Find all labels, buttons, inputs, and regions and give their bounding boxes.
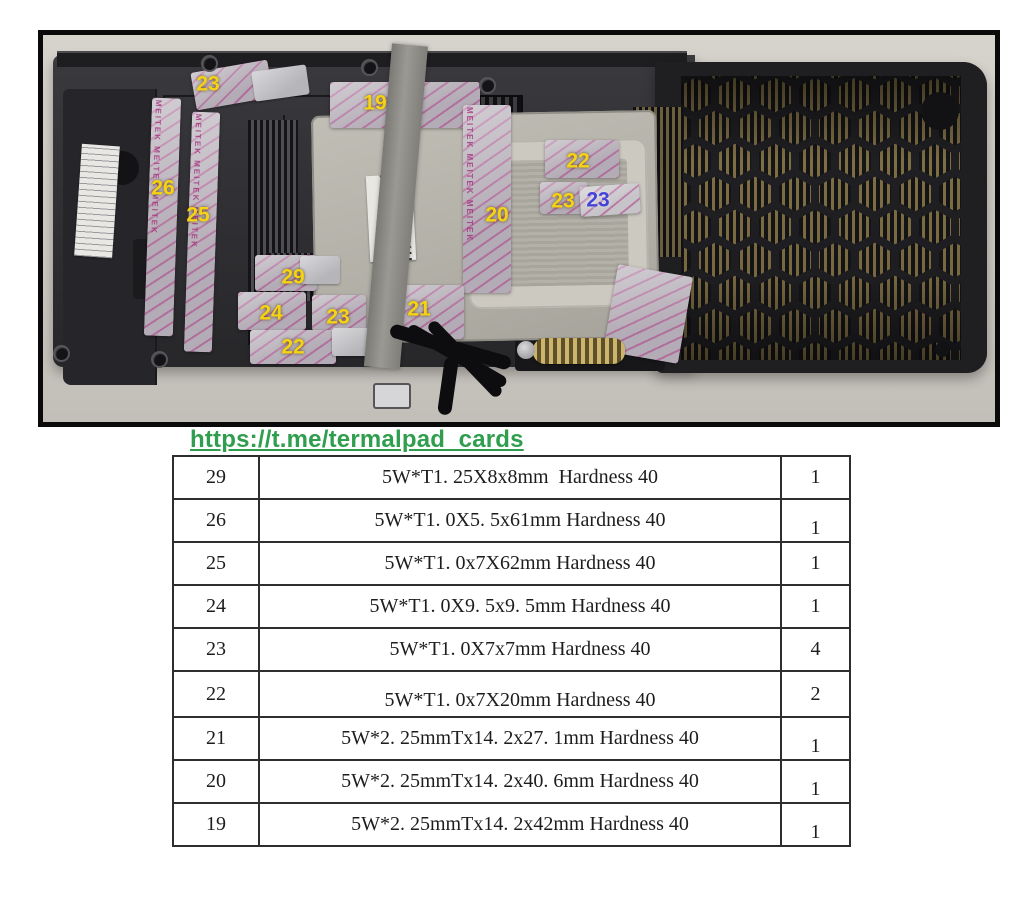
- cell-qty: 1: [781, 542, 850, 585]
- pad-number-label: 23: [196, 74, 219, 95]
- spring-bolt: [517, 341, 535, 359]
- screw: [363, 61, 376, 74]
- page: MEITEK MEITEK MEITEK MEITEK MEITEK MEITE…: [0, 0, 1032, 897]
- cell-num: 19: [173, 803, 259, 846]
- serial-label-sticker: [74, 144, 120, 258]
- pad-number-label: 23: [326, 307, 349, 328]
- fan-screw-hole: [921, 92, 959, 130]
- cell-qty: 4: [781, 628, 850, 671]
- cell-spec: 5W*2. 25mmTx14. 2x27. 1mm Hardness 40: [259, 717, 781, 760]
- pad-number-label: 20: [485, 205, 508, 226]
- pad-number-label: 24: [259, 303, 282, 324]
- thermal-pad-table: 295W*T1. 25X8x8mm Hardness 401265W*T1. 0…: [172, 455, 851, 847]
- table-row: 225W*T1. 0x7X20mm Hardness 402: [173, 671, 850, 717]
- screw: [481, 79, 494, 92]
- pad-brand-watermark: MEITEK MEITEK MEITEK: [463, 105, 476, 244]
- telegram-link[interactable]: https://t.me/termalpad_cards: [190, 426, 524, 454]
- cell-num: 24: [173, 585, 259, 628]
- cell-spec: 5W*T1. 0X7x7mm Hardness 40: [259, 628, 781, 671]
- pad-number-label: 21: [407, 299, 430, 320]
- cell-num: 25: [173, 542, 259, 585]
- photo-background: MEITEK MEITEK MEITEK MEITEK MEITEK MEITE…: [43, 35, 995, 422]
- cell-qty: 1: [781, 760, 850, 803]
- cell-num: 20: [173, 760, 259, 803]
- fan-connector: [373, 383, 411, 409]
- screw: [55, 347, 68, 360]
- cell-spec: 5W*2. 25mmTx14. 2x40. 6mm Hardness 40: [259, 760, 781, 803]
- pad-number-label: 25: [186, 205, 209, 226]
- table-row: 195W*2. 25mmTx14. 2x42mm Hardness 401: [173, 803, 850, 846]
- cell-qty: 1: [781, 803, 850, 846]
- pad-number-label: 23: [551, 191, 574, 212]
- cell-spec: 5W*T1. 0x7X62mm Hardness 40: [259, 542, 781, 585]
- pad-number-label: 26: [151, 178, 174, 199]
- table-row: 235W*T1. 0X7x7mm Hardness 404: [173, 628, 850, 671]
- cell-spec: 5W*T1. 0X9. 5x9. 5mm Hardness 40: [259, 585, 781, 628]
- pad-number-label: 19: [363, 93, 386, 114]
- thermal-pad: MEITEK MEITEK MEITEK: [463, 105, 511, 293]
- table-row: 295W*T1. 25X8x8mm Hardness 401: [173, 456, 850, 499]
- cell-qty: 1: [781, 585, 850, 628]
- table-row: 255W*T1. 0x7X62mm Hardness 401: [173, 542, 850, 585]
- gpu-shroud-fan-section: [655, 62, 987, 373]
- cell-num: 29: [173, 456, 259, 499]
- cell-num: 22: [173, 671, 259, 717]
- gpu-cooler-photo: MEITEK MEITEK MEITEK MEITEK MEITEK MEITE…: [38, 30, 1000, 427]
- table-row: 215W*2. 25mmTx14. 2x27. 1mm Hardness 401: [173, 717, 850, 760]
- cell-spec: 5W*2. 25mmTx14. 2x42mm Hardness 40: [259, 803, 781, 846]
- cell-spec: 5W*T1. 0X5. 5x61mm Hardness 40: [259, 499, 781, 542]
- table-row: 265W*T1. 0X5. 5x61mm Hardness 401: [173, 499, 850, 542]
- foil-pad: [300, 256, 340, 284]
- pad-number-label: 23: [586, 190, 609, 211]
- pad-number-label: 22: [566, 151, 589, 172]
- screw: [153, 353, 166, 366]
- screw: [203, 57, 216, 70]
- pad-number-label: 22: [281, 337, 304, 358]
- pad-number-label: 29: [281, 267, 304, 288]
- cell-qty: 1: [781, 717, 850, 760]
- cell-num: 23: [173, 628, 259, 671]
- gold-spring: [533, 338, 625, 364]
- cell-qty: 2: [781, 671, 850, 717]
- cell-num: 21: [173, 717, 259, 760]
- table-row: 205W*2. 25mmTx14. 2x40. 6mm Hardness 401: [173, 760, 850, 803]
- cell-spec: 5W*T1. 0x7X20mm Hardness 40: [259, 671, 781, 717]
- table-row: 245W*T1. 0X9. 5x9. 5mm Hardness 401: [173, 585, 850, 628]
- screw-hole: [935, 342, 950, 357]
- cell-num: 26: [173, 499, 259, 542]
- cell-qty: 1: [781, 456, 850, 499]
- cell-spec: 5W*T1. 25X8x8mm Hardness 40: [259, 456, 781, 499]
- cell-qty: 1: [781, 499, 850, 542]
